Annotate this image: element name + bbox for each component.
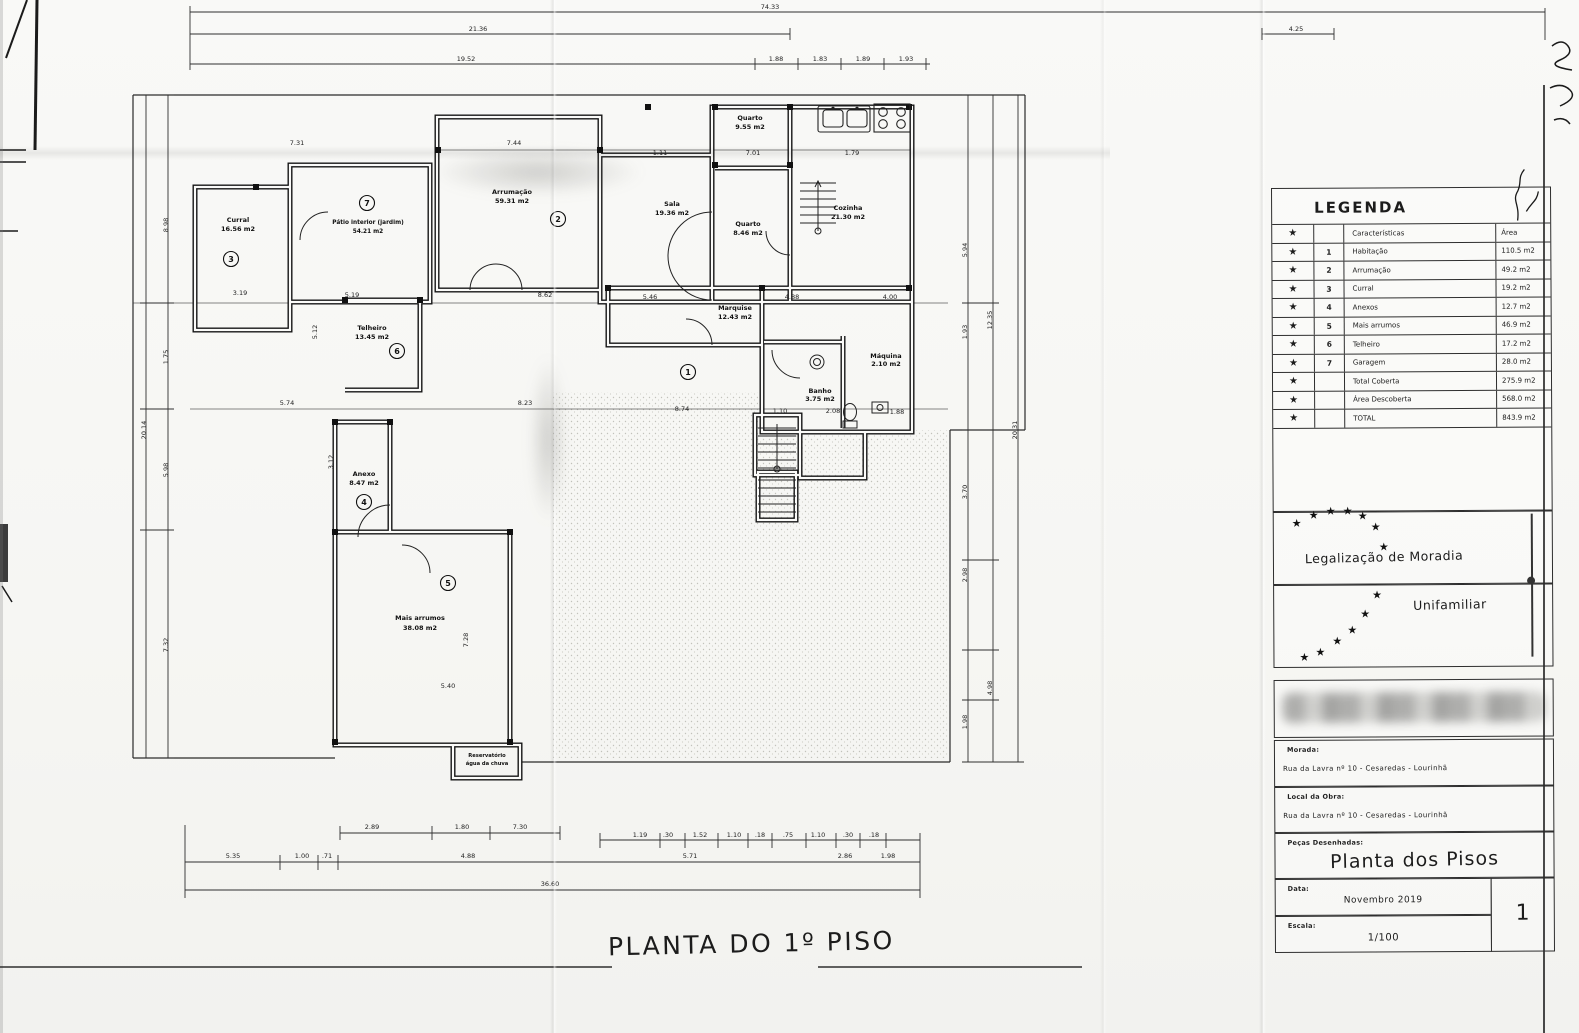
- dimension-label: 8.98: [162, 218, 170, 232]
- dimension-label: 1.52: [693, 831, 707, 839]
- date-box: Data: Novembro 2019: [1275, 878, 1492, 916]
- dimension-label: 1.75: [162, 350, 170, 364]
- kitchen-sink-icon: [818, 106, 870, 132]
- eu-star-icon: ★: [1372, 589, 1382, 600]
- dimension-label: 1.89: [856, 55, 870, 63]
- pecas-label: Peças Desenhadas:: [1287, 839, 1363, 847]
- obra-label: Local da Obra:: [1287, 793, 1344, 801]
- room-area: 13.45 m2: [355, 333, 389, 341]
- legend-title: LEGENDA: [1314, 198, 1407, 216]
- room-area: 21.30 m2: [831, 213, 865, 221]
- scale-value: 1/100: [1276, 932, 1491, 944]
- room-marker-label: 2: [555, 215, 561, 224]
- legend-num: [1315, 373, 1345, 391]
- dimension-label: 3.19: [233, 289, 247, 297]
- eu-star-icon: ★: [1343, 506, 1353, 517]
- room-area: 9.55 m2: [735, 123, 765, 131]
- dimension-label: 1.98: [881, 852, 895, 860]
- stamp-text-line2: Unifamiliar: [1413, 596, 1487, 613]
- room-label: Banho: [808, 387, 832, 395]
- room-label: Curral: [227, 216, 249, 224]
- star-icon: ★: [1273, 354, 1315, 372]
- dimension-label: .30: [663, 831, 673, 839]
- dimension-label: 8.23: [518, 399, 532, 407]
- dimension-label: 21.36: [469, 25, 488, 33]
- redacted-text: [1283, 692, 1545, 723]
- room-label: Máquina: [870, 352, 901, 360]
- legend-num: 7: [1315, 354, 1345, 372]
- eu-star-icon: ★: [1292, 518, 1302, 529]
- legend-box: LEGENDA ★ Características Área ★ 1 Habit…: [1271, 187, 1553, 512]
- dimension-label: 1.88: [890, 408, 904, 416]
- star-icon: ★: [1272, 243, 1314, 261]
- dimension-label: 1.79: [845, 149, 859, 157]
- eu-star-icon: ★: [1332, 636, 1342, 647]
- star-icon: ★: [1273, 410, 1315, 428]
- legend-row: ★ TOTAL 843.9 m2: [1273, 409, 1551, 429]
- legend-name: Área Descoberta: [1345, 390, 1497, 408]
- room-label: Quarto: [735, 220, 761, 228]
- plan-title: PLANTA DO 1º PISO: [608, 928, 823, 962]
- room-marker-label: 1: [685, 368, 691, 377]
- legend-num: [1315, 410, 1345, 428]
- eu-star-icon: ★: [1326, 506, 1336, 517]
- dimension-label: 5.46: [643, 293, 657, 301]
- dimension-label: 3.12: [327, 455, 335, 469]
- dimension-label: 2.08: [826, 407, 840, 415]
- room-label: Cozinha: [834, 204, 863, 212]
- obra-value: Rua da Lavra nº 10 - Cesaredas - Lourinh…: [1283, 811, 1447, 820]
- legend-name: Curral: [1344, 279, 1496, 297]
- legend-row: ★ 1 Habitação 110.5 m2: [1272, 242, 1550, 262]
- dimension-label: 1.93: [899, 55, 913, 63]
- legend-name: TOTAL: [1345, 409, 1497, 427]
- dimension-label: 5.35: [226, 852, 240, 860]
- star-icon: ★: [1272, 280, 1314, 298]
- room-label: Pátio interior (jardim): [332, 219, 404, 226]
- dimension-label: 5.94: [961, 243, 969, 257]
- dimension-label: .30: [843, 831, 853, 839]
- dimension-label: 1.19: [633, 831, 647, 839]
- dimension-label: 5.98: [162, 463, 170, 477]
- dimension-label: 1.10: [811, 831, 825, 839]
- legend-name: Garagem: [1345, 353, 1497, 371]
- room-marker-label: 3: [228, 255, 234, 264]
- room-area: 8.46 m2: [733, 229, 763, 237]
- scale-label: Escala:: [1288, 922, 1316, 930]
- legend-num: [1315, 391, 1345, 409]
- legend-row: ★ 4 Anexos 12.7 m2: [1273, 298, 1551, 318]
- dimension-label: 1.93: [961, 325, 969, 339]
- dimension-label: 4.00: [883, 293, 897, 301]
- room-area: 59.31 m2: [495, 197, 529, 205]
- left-edge-artifacts: [0, 0, 37, 1033]
- dimension-label: 5.40: [441, 682, 455, 690]
- dimension-label: 1.98: [961, 715, 969, 729]
- washing-machine-icon: [872, 402, 888, 413]
- dimension-label: .18: [755, 831, 765, 839]
- star-icon: ★: [1273, 336, 1315, 354]
- dimension-label: 19.52: [457, 55, 476, 63]
- dimension-label: 8.62: [538, 291, 552, 299]
- title-block-panel: LEGENDA ★ Características Área ★ 1 Habit…: [1271, 187, 1559, 978]
- sheet-number-box: 1: [1490, 878, 1555, 952]
- room-area: 12.43 m2: [718, 313, 752, 321]
- dimension-label: 3.70: [961, 485, 969, 499]
- legend-num: 6: [1315, 336, 1345, 354]
- legend-row: ★ 3 Curral 19.2 m2: [1272, 279, 1550, 299]
- dimension-label: 8.74: [675, 405, 689, 413]
- legend-name: Habitação: [1344, 242, 1496, 260]
- dimension-label: 5.71: [683, 852, 697, 860]
- dimension-label: 2.89: [365, 823, 379, 831]
- legend-row: ★ 7 Garagem 28.0 m2: [1273, 353, 1551, 373]
- legend-num: 4: [1315, 299, 1345, 317]
- room-marker-label: 6: [394, 347, 400, 356]
- star-icon: ★: [1273, 299, 1315, 317]
- dimension-label: 5.74: [280, 399, 294, 407]
- eu-star-icon: ★: [1315, 647, 1325, 658]
- dimension-label: 2.86: [838, 852, 852, 860]
- dimension-label: 4.98: [986, 681, 994, 695]
- dimension-label: 4.88: [461, 852, 475, 860]
- dimension-label: 36.60: [541, 880, 560, 888]
- room-marker-label: 4: [361, 498, 367, 507]
- star-icon: ★: [1272, 262, 1314, 280]
- legend-num: [1314, 225, 1344, 243]
- room-label: Marquise: [718, 304, 752, 312]
- room-area: água da chuva: [466, 760, 509, 767]
- scanned-floor-plan-sheet: 3 7 2 6 4 5 1 Curral 16.56 m2 Pátio inte…: [0, 0, 1579, 1033]
- room-area: 2.10 m2: [871, 360, 901, 368]
- dimension-label: 4.25: [1289, 25, 1303, 33]
- dimension-label: 7.32: [162, 638, 170, 652]
- dimension-label: 7.30: [513, 823, 527, 831]
- page-edge-line: [1543, 85, 1545, 1033]
- room-area: 8.47 m2: [349, 479, 379, 487]
- eu-star-icon: ★: [1360, 608, 1370, 619]
- dimension-label: 4.88: [785, 293, 799, 301]
- eu-star-icon: ★: [1371, 521, 1381, 532]
- date-value: Novembro 2019: [1276, 895, 1491, 906]
- room-label: Arrumação: [492, 188, 532, 196]
- morada-value: Rua da Lavra nº 10 - Cesaredas - Lourinh…: [1283, 764, 1447, 773]
- drawing-name: Planta dos Pisos: [1275, 846, 1553, 874]
- dimension-label: 1.80: [455, 823, 469, 831]
- room-area: 16.56 m2: [221, 225, 255, 233]
- room-marker-label: 7: [364, 199, 370, 208]
- legend-num: 5: [1315, 317, 1345, 335]
- legend-name: Total Coberta: [1345, 372, 1497, 390]
- legend-row: ★ 5 Mais arrumos 46.9 m2: [1273, 316, 1551, 336]
- dimension-label: 74.33: [761, 3, 780, 11]
- room-label: Reservatório: [468, 752, 506, 759]
- legend-row: ★ Área Descoberta 568.0 m2: [1273, 390, 1551, 410]
- star-icon: ★: [1273, 391, 1315, 409]
- dimension-label: 7.01: [746, 149, 760, 157]
- redacted-name-box: [1274, 679, 1554, 738]
- pecas-desenhadas-box: Peças Desenhadas: Planta dos Pisos: [1274, 832, 1554, 879]
- legend-num: 3: [1314, 280, 1344, 298]
- legend-row: ★ 2 Arrumação 49.2 m2: [1272, 261, 1550, 281]
- legend-name: Anexos: [1345, 298, 1497, 316]
- room-label: Mais arrumos: [395, 614, 445, 622]
- morada-label: Morada:: [1287, 746, 1319, 754]
- room-area: 19.36 m2: [655, 209, 689, 217]
- legend-name: Telheiro: [1345, 335, 1497, 353]
- legend-table: ★ Características Área ★ 1 Habitação 110…: [1272, 223, 1551, 429]
- dimension-label: 1.88: [769, 55, 783, 63]
- legend-row: ★ Total Coberta 275.9 m2: [1273, 372, 1551, 392]
- dimension-label: .71: [322, 852, 332, 860]
- room-label: Sala: [664, 200, 680, 208]
- eu-star-icon: ★: [1299, 652, 1309, 663]
- legend-name: Mais arrumos: [1345, 316, 1497, 334]
- eu-star-icon: ★: [1309, 510, 1319, 521]
- dimension-label: 1.83: [813, 55, 827, 63]
- dimension-label: 12.35: [986, 311, 994, 330]
- washbasin-icon: [810, 355, 824, 369]
- dimension-label: 1.10: [773, 407, 787, 415]
- legend-num: 2: [1314, 262, 1344, 280]
- room-label: Quarto: [737, 114, 763, 122]
- dimension-label: 2.98: [961, 568, 969, 582]
- scale-box: Escala: 1/100: [1275, 915, 1492, 953]
- dimension-label: .75: [783, 831, 793, 839]
- dimension-label: 7.44: [507, 139, 521, 147]
- room-marker-label: 5: [445, 579, 451, 588]
- room-label: Anexo: [353, 470, 376, 478]
- eu-star-icon: ★: [1358, 510, 1368, 521]
- dimension-label: 7.31: [290, 139, 304, 147]
- room-area: 3.75 m2: [805, 395, 835, 403]
- morada-box: Morada: Rua da Lavra nº 10 - Cesaredas -…: [1274, 739, 1554, 787]
- legend-num: 1: [1314, 243, 1344, 261]
- eu-star-icon: ★: [1347, 625, 1357, 636]
- legend-header-row: ★ Características Área: [1272, 224, 1550, 244]
- dimension-label: 5.12: [311, 325, 319, 339]
- dimension-label: 7.28: [462, 633, 470, 647]
- dimension-label: 5.19: [345, 291, 359, 299]
- margin-scribble: [1546, 36, 1579, 146]
- dimension-label: 20.31: [1011, 421, 1019, 440]
- dimension-label: 20.14: [140, 421, 148, 440]
- room-area: 54.21 m2: [353, 229, 383, 235]
- legend-name: Arrumação: [1344, 261, 1496, 279]
- room-label: Telheiro: [357, 324, 387, 332]
- legend-name-header: Características: [1344, 224, 1496, 242]
- garden-hatch-area: [553, 392, 948, 758]
- dimension-label: 1.11: [653, 149, 667, 157]
- dimension-label: 1.10: [727, 831, 741, 839]
- legend-row: ★ 6 Telheiro 17.2 m2: [1273, 335, 1551, 355]
- date-label: Data:: [1288, 885, 1309, 893]
- star-icon: ★: [1272, 225, 1314, 243]
- room-area: 38.08 m2: [403, 624, 437, 632]
- dimension-label: 1.00: [295, 852, 309, 860]
- dimension-label: .18: [869, 831, 879, 839]
- star-icon: ★: [1273, 373, 1315, 391]
- stamp-dot: [1527, 577, 1535, 585]
- star-icon: ★: [1273, 317, 1315, 335]
- local-da-obra-box: Local da Obra: Rua da Lavra nº 10 - Cesa…: [1274, 786, 1554, 833]
